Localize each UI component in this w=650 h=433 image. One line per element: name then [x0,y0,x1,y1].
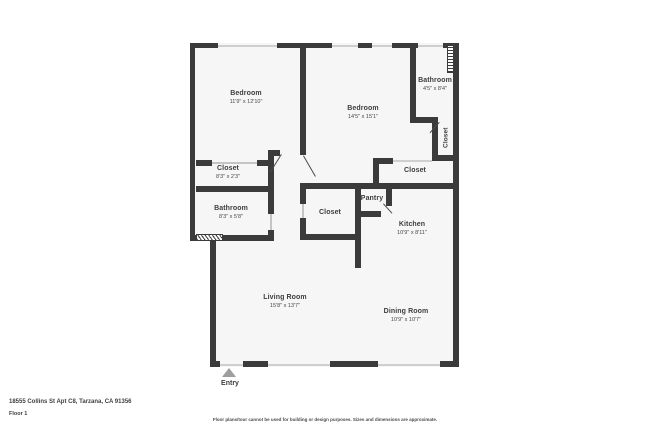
room-name: Bathroom [191,205,271,213]
wall-segment [243,361,268,367]
room-label-living-room: Living Room 15'8" x 13'7" [235,294,335,309]
wall-segment [210,361,220,367]
wall-segment [410,117,438,123]
wall-segment [358,43,372,48]
room-name: Living Room [235,294,335,302]
closet-door-line [212,162,257,164]
room-name: Bedroom [313,105,413,113]
window [372,45,392,47]
wall-segment [300,234,355,240]
wall-segment [268,230,274,240]
room-name: Closet [442,121,449,155]
address: 18555 Collins St Apt C8, Tarzana, CA 913… [9,399,132,405]
room-label-dining-room: Dining Room 10'9" x 10'7" [356,308,456,323]
window [378,364,440,366]
room-name: Dining Room [356,308,456,316]
room-label-bathroom-2: Bathroom 8'3" x 5'8" [191,205,271,220]
room-dims: 4'5" x 8'4" [405,86,465,92]
room-label-bedroom-1: Bedroom 11'9" x 12'10" [196,90,296,105]
entry-arrow-icon [222,368,236,377]
wall-segment [361,211,381,217]
room-name: Closet [193,165,263,173]
room-name: Bathroom [405,77,465,85]
door-line [302,204,304,218]
wall-segment [196,186,274,192]
window [418,45,443,47]
room-label-closet-kitchen: Closet [375,167,455,175]
room-name: Bedroom [196,90,296,98]
room-label-bedroom-2: Bedroom 14'5" x 15'1" [313,105,413,120]
room-dims: 15'8" x 13'7" [235,303,335,309]
closet-door-line [393,160,432,162]
room-label-bathroom-1: Bathroom 4'5" x 8'4" [405,77,465,92]
window [332,45,358,47]
room-dims: 10'9" x 10'7" [356,317,456,323]
room-label-closet-mid: Closet [305,209,355,217]
room-label-closet-bed1: Closet 8'3" x 2'3" [193,165,263,180]
room-name: Kitchen [377,221,447,229]
room-name: Closet [375,167,455,175]
wall-segment [440,361,459,367]
entry-threshold [220,364,243,366]
room-label-kitchen: Kitchen 10'9" x 8'11" [377,221,447,236]
wall-segment [300,183,459,189]
wall-segment [330,361,378,367]
room-dims: 8'3" x 2'3" [193,174,263,180]
room-label-pantry: Pantry [347,195,397,203]
entry-label: Entry [205,380,255,387]
window [218,45,277,47]
wall-segment [210,240,216,367]
room-dims: 8'3" x 5'8" [191,214,271,220]
fixture-hatch [447,45,454,73]
room-name: Closet [305,209,355,217]
wall-segment [300,43,306,155]
fixture-hatch [196,234,223,241]
window [268,364,330,366]
floor-plan: Bedroom 11'9" x 12'10" Bedroom 14'5" x 1… [0,0,650,433]
wall-segment [300,189,306,204]
room-dims: 10'9" x 8'11" [377,230,447,236]
room-name: Pantry [347,195,397,203]
room-label-closet-hall: Closet [442,121,449,155]
disclaimer: Floor plans/tour cannot be used for buil… [0,417,650,422]
room-dims: 14'5" x 15'1" [313,114,413,120]
room-dims: 11'9" x 12'10" [196,99,296,105]
wall-segment [432,155,453,161]
